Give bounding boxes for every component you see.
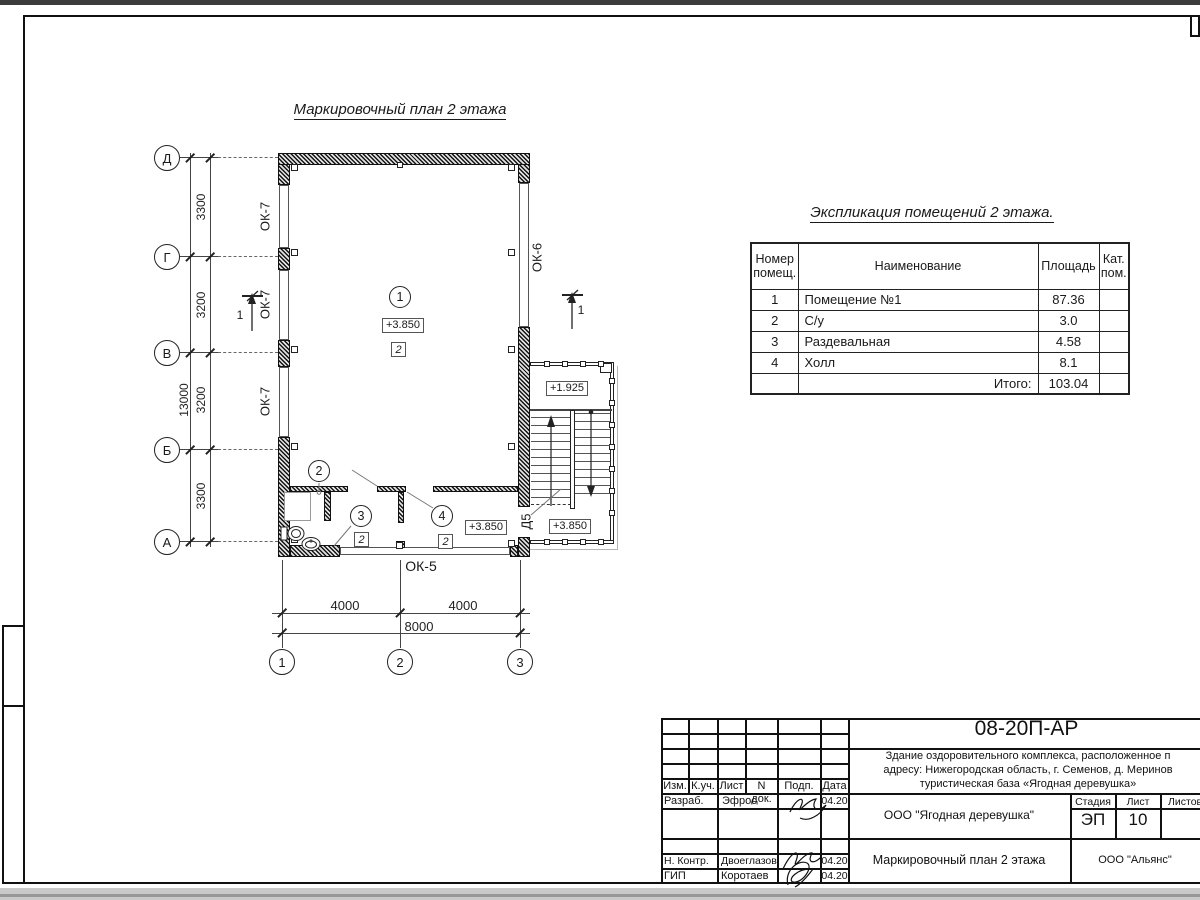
annex-post <box>598 539 604 545</box>
staff-date-nkontr: 04.20 <box>821 855 848 868</box>
window-ok7-middle <box>279 270 289 340</box>
dim-4000-right: 4000 <box>433 599 493 613</box>
stage-value: ЭП <box>1071 813 1115 826</box>
screen-top-edge <box>0 0 1200 5</box>
axis-line <box>180 449 218 450</box>
dim-3300-bottom: 3300 <box>194 466 208 526</box>
axis-circle-v: В <box>154 340 180 366</box>
column-marker <box>508 540 515 547</box>
type-mark-room3: 2 <box>354 532 369 547</box>
wall-left-pier-2 <box>278 248 290 270</box>
type-mark-room4: 2 <box>438 534 453 549</box>
axis-line-3 <box>520 560 521 648</box>
col-list: Лист <box>718 780 745 793</box>
annex-wall-right <box>610 362 614 544</box>
window-ok5 <box>340 547 510 555</box>
col-header-cat: Кат. пом. <box>1099 243 1129 289</box>
margin-column-line <box>2 625 4 883</box>
cell-name: Раздевальная <box>798 331 1038 352</box>
axis-line <box>180 256 218 257</box>
contractor-name: ООО "Альянс" <box>1072 854 1198 867</box>
wall-left-pier-3 <box>278 340 290 367</box>
cell-num: 3 <box>751 331 798 352</box>
table-row: 1 Помещение №1 87.36 <box>751 289 1129 310</box>
column-marker <box>397 162 403 168</box>
wall-right-pier-1 <box>518 164 530 183</box>
col-izm: Изм. <box>662 780 688 793</box>
cell-name: Помещение №1 <box>798 289 1038 310</box>
col-header-name: Наименование <box>798 243 1038 289</box>
annex-post <box>562 539 568 545</box>
screen-bottom-line <box>0 894 1200 897</box>
dim-line-segments-horizontal <box>272 613 530 614</box>
staff-role-gip: ГИП <box>664 870 686 883</box>
annex-post <box>598 361 604 367</box>
frame-corner-box <box>1190 15 1200 37</box>
cell-name: Холл <box>798 352 1038 373</box>
shower-tray <box>284 492 311 521</box>
column-marker <box>291 249 298 256</box>
staff-date-gip: 04.20 <box>821 870 848 883</box>
table-row: 2 С/у 3.0 <box>751 310 1129 331</box>
column-marker <box>291 346 298 353</box>
axis-circle-d: Д <box>154 145 180 171</box>
window-ok6 <box>519 183 529 327</box>
elevation-room1: +3.850 <box>382 318 424 333</box>
axis-line-2 <box>400 560 401 648</box>
staff-role-razrab: Разраб. <box>664 795 704 808</box>
wall-right-lower <box>518 537 530 557</box>
axis-line-1 <box>282 560 283 648</box>
staff-name-gip: Коротаев <box>721 870 769 883</box>
elevation-landing: +1.925 <box>546 381 588 396</box>
annex-post <box>609 378 615 384</box>
dim-8000-total: 8000 <box>389 620 449 634</box>
axis-circle-1: 1 <box>269 649 295 675</box>
dim-4000-left: 4000 <box>315 599 375 613</box>
axis-circle-3: 3 <box>507 649 533 675</box>
client-name: ООО "Ягодная деревушка" <box>850 809 1068 822</box>
annex-outer-line <box>530 549 618 550</box>
column-marker <box>508 443 515 450</box>
partition-5 <box>433 486 518 492</box>
window-mark-ok7-3: ОК-7 <box>258 380 273 424</box>
cell-area: 8.1 <box>1038 352 1099 373</box>
window-mark-ok7-2: ОК-7 <box>258 283 273 327</box>
table-row: 4 Холл 8.1 <box>751 352 1129 373</box>
cell-num: 1 <box>751 289 798 310</box>
annex-post <box>580 361 586 367</box>
frame-bottom <box>2 882 1200 884</box>
col-data: Дата <box>821 780 848 793</box>
margin-divider-2 <box>2 705 23 707</box>
total-label: Итого: <box>798 373 1038 394</box>
axis-line-dash <box>218 352 278 353</box>
table-row: 3 Раздевальная 4.58 <box>751 331 1129 352</box>
annex-post <box>609 400 615 406</box>
frame-top <box>23 15 1200 17</box>
cell-empty <box>751 373 798 394</box>
axis-line-dash <box>218 256 278 257</box>
sheet-label: Лист <box>1116 796 1160 809</box>
cell-cat <box>1099 289 1129 310</box>
dim-3200-upper: 3200 <box>194 275 208 335</box>
column-marker <box>396 542 403 549</box>
staff-role-nkontr: Н. Контр. <box>664 855 709 868</box>
axis-line-dash <box>218 157 278 158</box>
wall-bottom-left <box>290 545 340 557</box>
column-marker <box>291 164 298 171</box>
staff-date-razrab: 04.20 <box>821 795 848 808</box>
explication-table: Номер помещ. Наименование Площадь Кат. п… <box>750 242 1130 395</box>
wall-left-pier-1 <box>278 164 290 185</box>
window-ok7-top <box>279 185 289 248</box>
staff-name-razrab: Эфрос <box>722 795 757 808</box>
axis-line-dash <box>218 541 278 542</box>
annex-post <box>562 361 568 367</box>
col-header-num: Номер помещ. <box>751 243 798 289</box>
wall-right-middle <box>518 327 530 507</box>
axis-line <box>180 157 218 158</box>
annex-outer-line <box>617 366 618 550</box>
sheet-number: 10 <box>1116 813 1160 826</box>
sheets-label: Листов <box>1168 796 1200 809</box>
type-mark-room1: 2 <box>391 342 406 357</box>
axis-circle-g: Г <box>154 244 180 270</box>
col-podp: Подп. <box>778 780 820 793</box>
elevation-hall: +3.850 <box>465 520 507 535</box>
cell-cat <box>1099 310 1129 331</box>
cell-area: 87.36 <box>1038 289 1099 310</box>
col-kuch: К.уч. <box>689 780 717 793</box>
window-mark-ok6: ОК-6 <box>530 236 545 280</box>
cell-name: С/у <box>798 310 1038 331</box>
cell-num: 2 <box>751 310 798 331</box>
door-mark-d5: Д5 <box>519 507 534 537</box>
axis-circle-b: Б <box>154 437 180 463</box>
partition-4 <box>398 492 404 523</box>
stage-label: Стадия <box>1071 796 1115 809</box>
drawing-sheet: Маркировочный план 2 этажа Д Г В Б А 330… <box>0 0 1200 900</box>
column-marker <box>508 346 515 353</box>
annex-post <box>544 539 550 545</box>
column-marker <box>291 443 298 450</box>
annex-post <box>544 361 550 367</box>
cell-num: 4 <box>751 352 798 373</box>
staff-name-nkontr: Двоеглазов <box>721 855 777 868</box>
cell-cat <box>1099 352 1129 373</box>
total-value: 103.04 <box>1038 373 1099 394</box>
room-circle-3: 3 <box>350 505 372 527</box>
table-row-total: Итого: 103.04 <box>751 373 1129 394</box>
axis-circle-2: 2 <box>387 649 413 675</box>
cell-area: 4.58 <box>1038 331 1099 352</box>
cell-cat <box>1099 331 1129 352</box>
axis-line <box>180 352 218 353</box>
dim-3300-top: 3300 <box>194 177 208 237</box>
doc-number: 08-20П-АР <box>848 722 1200 735</box>
plan-title: Маркировочный план 2 этажа <box>250 101 550 118</box>
room-circle-2: 2 <box>308 460 330 482</box>
project-description: Здание оздоровительного комплекса, распо… <box>850 750 1200 791</box>
cell-empty <box>1099 373 1129 394</box>
explication-title: Экспликация помещений 2 этажа. <box>772 204 1092 221</box>
axis-line <box>180 541 218 542</box>
annex-post <box>609 510 615 516</box>
dim-3200-lower: 3200 <box>194 370 208 430</box>
wall-top <box>278 153 530 165</box>
margin-divider-1 <box>2 625 23 627</box>
stair-treads-right <box>575 413 610 499</box>
col-header-area: Площадь <box>1038 243 1099 289</box>
stair-treads-left <box>531 417 570 503</box>
frame-left <box>23 15 25 884</box>
elevation-stair-bottom: +3.850 <box>549 519 591 534</box>
axis-line-dash <box>218 449 278 450</box>
column-marker <box>508 164 515 171</box>
signature-nkontr <box>783 853 821 869</box>
stair-cut-line <box>531 504 571 505</box>
partition-2 <box>324 492 331 521</box>
axis-circle-a: А <box>154 529 180 555</box>
dim-13000-total: 13000 <box>177 365 191 435</box>
section-mark-left-label: 1 <box>234 308 246 323</box>
section-mark-right-label: 1 <box>575 303 587 318</box>
drawing-title: Маркировочный план 2 этажа <box>850 854 1068 867</box>
annex-post <box>580 539 586 545</box>
room-circle-4: 4 <box>431 505 453 527</box>
window-mark-ok7-1: ОК-7 <box>258 195 273 239</box>
window-ok7-bottom <box>279 367 289 437</box>
column-marker <box>508 249 515 256</box>
column-marker <box>291 536 298 543</box>
cell-area: 3.0 <box>1038 310 1099 331</box>
room-circle-1: 1 <box>389 286 411 308</box>
